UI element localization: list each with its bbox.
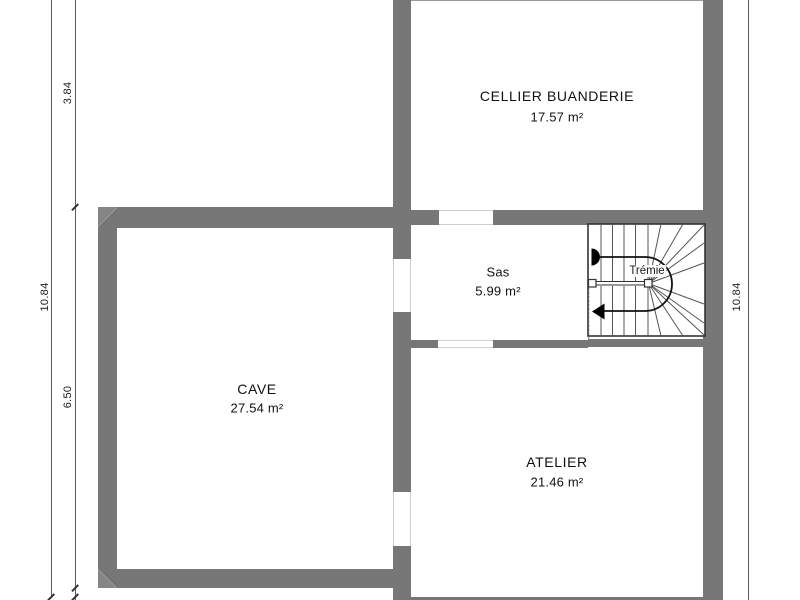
staircase-drawing	[0, 0, 800, 600]
floor-plan: 3.84 10.84 6.50 10.84 CELLIER BUANDERIE …	[0, 0, 800, 600]
stair-tremie-label: Trémie	[627, 265, 666, 277]
